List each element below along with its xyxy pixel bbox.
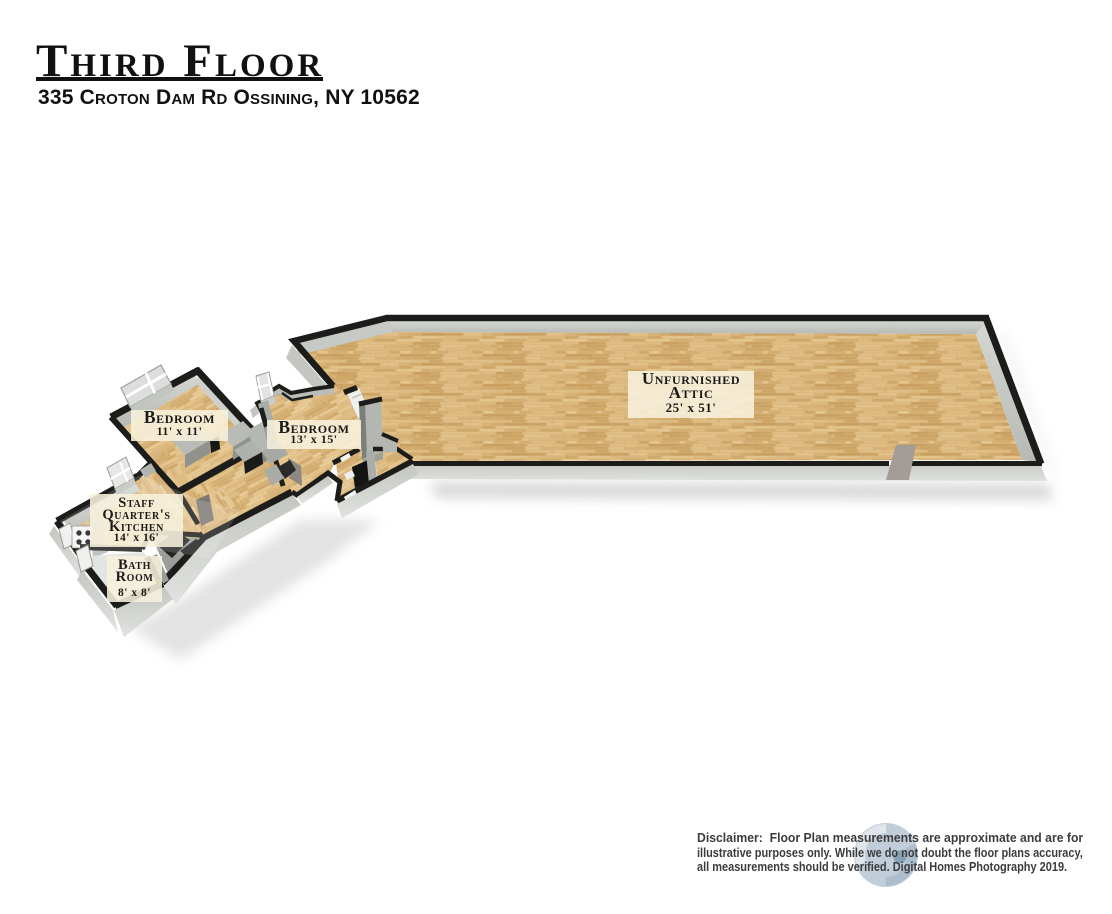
svg-text:Room: Room: [116, 569, 154, 585]
svg-text:8' x 8': 8' x 8': [118, 587, 151, 599]
svg-text:14' x 16': 14' x 16': [114, 532, 159, 544]
svg-text:13' x 15': 13' x 15': [290, 432, 337, 446]
svg-text:11' x 11': 11' x 11': [157, 424, 203, 438]
svg-text:25' x 51': 25' x 51': [666, 400, 717, 415]
